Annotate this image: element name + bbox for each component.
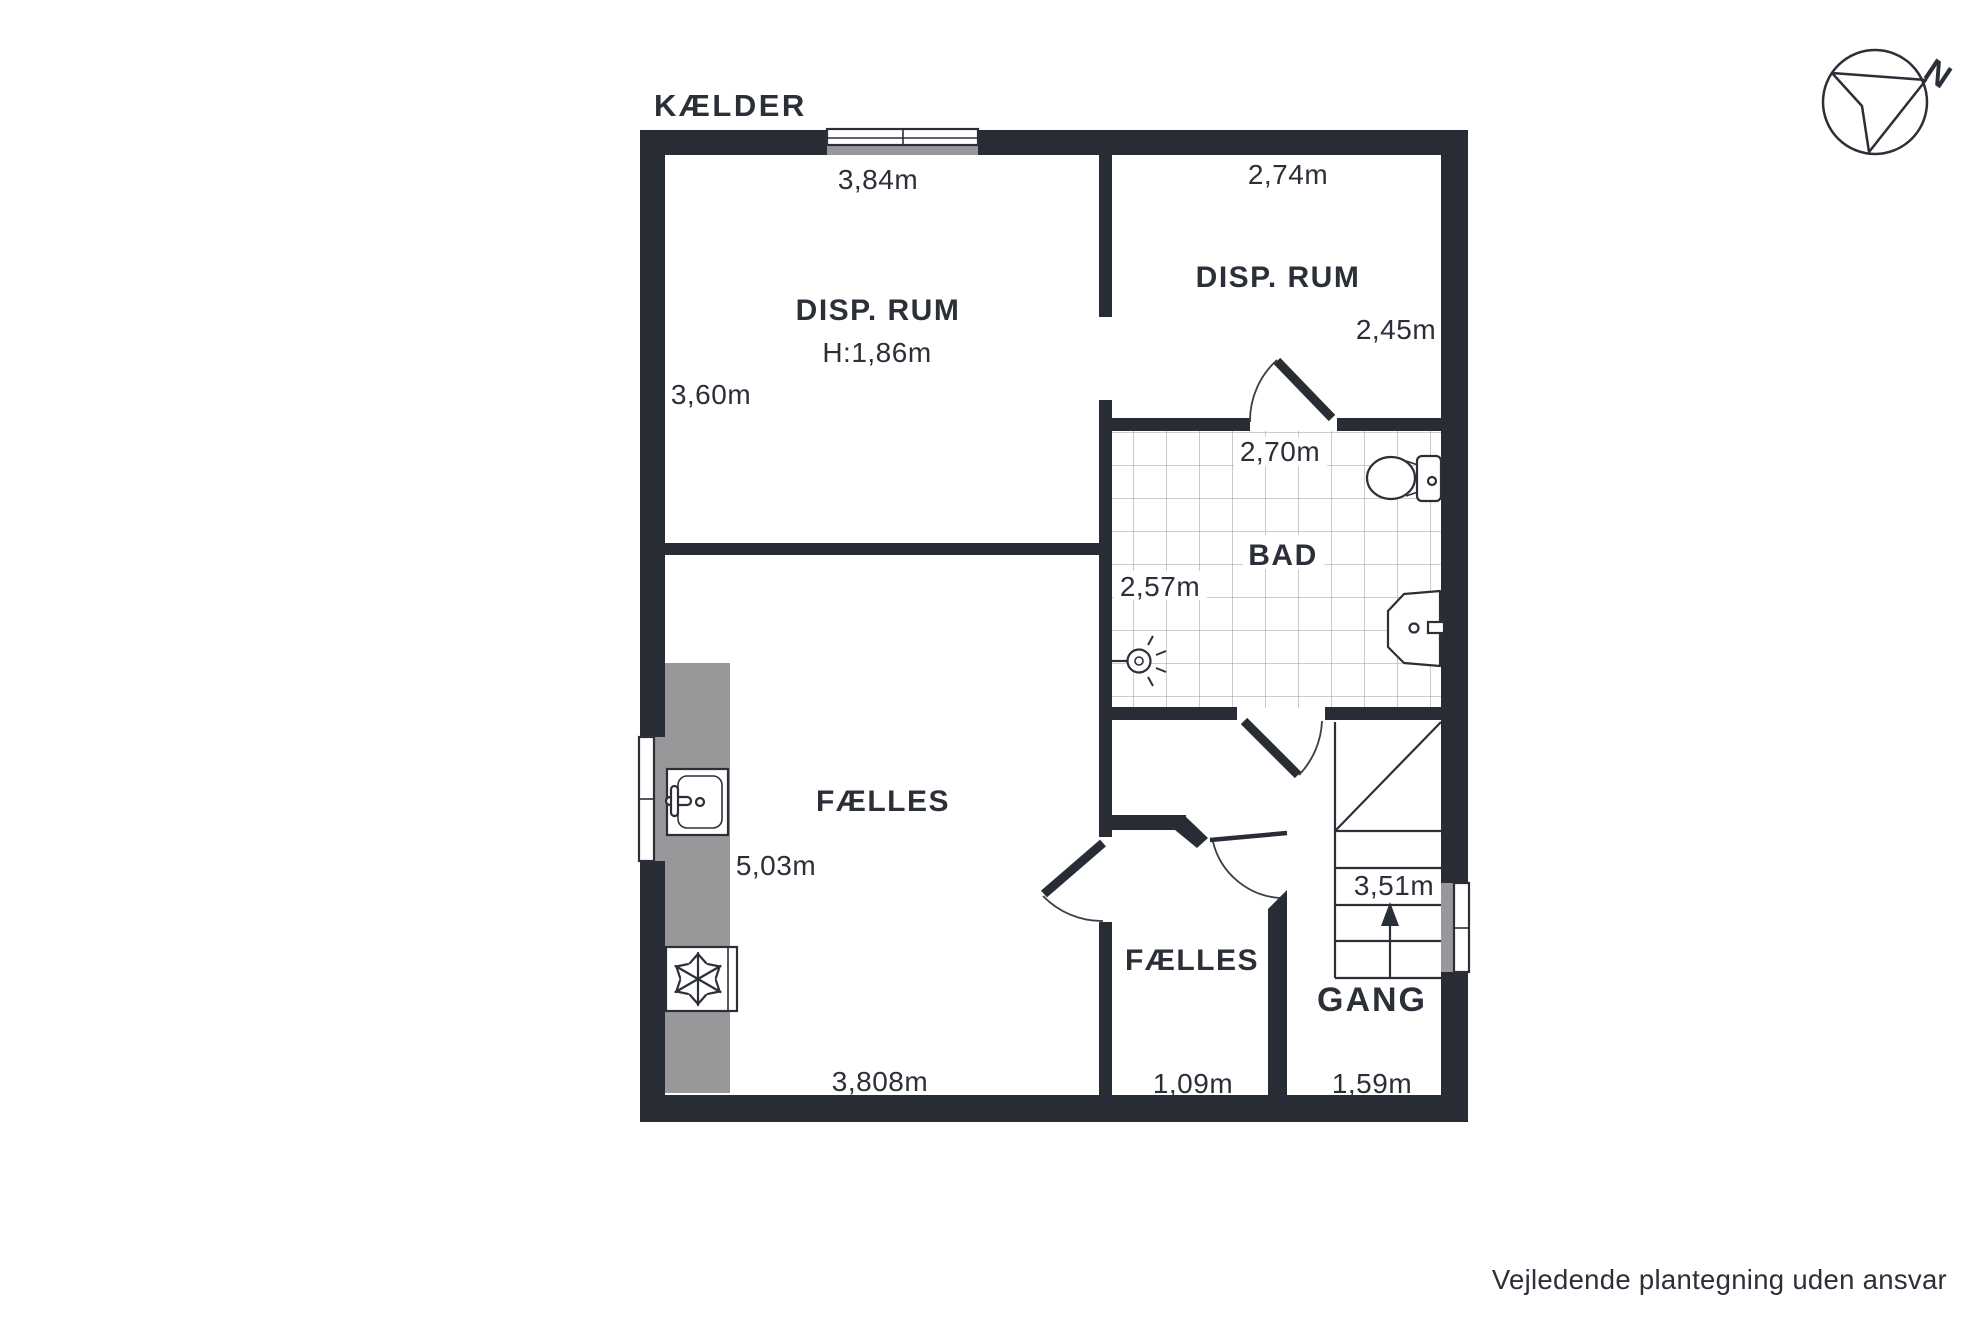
floorplan-canvas: N KÆLDER 3,84m 2,74m DISP. RUM H:1,86m 3…: [0, 0, 1984, 1323]
wall-divider-top: [1099, 155, 1112, 317]
wall-faelles-small-right: [1268, 890, 1287, 1097]
room-label-disp-rum-right: DISP. RUM: [1196, 261, 1361, 294]
kitchen-sink-icon: [666, 769, 728, 835]
disclaimer-text: Vejledende plantegning uden ansvar: [1492, 1264, 1947, 1295]
room-label-bad: BAD: [1248, 539, 1318, 572]
floor-title: KÆLDER: [654, 88, 807, 123]
wall-bad-left: [1099, 431, 1112, 837]
toilet-icon: [1367, 456, 1441, 501]
measurement-bad-depth: 2,57m: [1120, 571, 1200, 602]
washbasin-icon: [1388, 591, 1444, 666]
measurement-disp-right-depth: 2,45m: [1356, 314, 1436, 345]
measurement-faelles-depth: 5,03m: [736, 850, 816, 881]
wall-bad-bottom-right: [1325, 707, 1442, 720]
floorplan-page: N KÆLDER 3,84m 2,74m DISP. RUM H:1,86m 3…: [0, 0, 1984, 1323]
measurement-gang-width: 1,59m: [1332, 1068, 1412, 1099]
measurement-stairs-run: 3,51m: [1354, 870, 1434, 901]
measurement-disp-right-width: 2,74m: [1248, 159, 1328, 190]
compass: N: [1823, 50, 1958, 154]
wall-bottom: [640, 1095, 1468, 1122]
measurement-disp-left-width: 3,84m: [838, 164, 918, 195]
wall-bad-top-left: [1112, 418, 1250, 431]
room-label-faelles-main: FÆLLES: [816, 785, 950, 818]
wall-top: [640, 130, 1468, 155]
window-top: [827, 129, 978, 155]
wall-faelles-small-left: [1099, 922, 1112, 1097]
room-label-faelles-small: FÆLLES: [1125, 944, 1259, 977]
door-faelles-small-gang: [1210, 833, 1287, 898]
room-label-gang: GANG: [1317, 981, 1427, 1019]
measurement-bad-width: 2,70m: [1240, 436, 1320, 467]
window-left: [639, 737, 665, 861]
door-bad-corridor: [1244, 721, 1322, 775]
room-label-disp-rum-left: DISP. RUM: [796, 294, 961, 327]
stairs-winder-diagonal: [1335, 722, 1441, 831]
door-faelles-main: [1043, 843, 1103, 921]
measurement-disp-left-depth: 3,60m: [671, 379, 751, 410]
measurement-faelles-small-width: 1,09m: [1153, 1068, 1233, 1099]
wall-bad-top-right: [1337, 418, 1442, 431]
freezer-icon: [666, 947, 737, 1011]
wall-left: [640, 130, 665, 1122]
measurement-faelles-width: 3,808m: [832, 1066, 928, 1097]
wall-divider-stub: [1099, 400, 1112, 432]
wall-bad-bottom-left: [1112, 707, 1237, 720]
ceiling-height-note: H:1,86m: [822, 337, 931, 368]
window-right: [1441, 883, 1469, 972]
kitchen-counter: [665, 663, 730, 1093]
door-dispright-bad: [1250, 360, 1332, 422]
wall-faelles-small-top: [1112, 815, 1186, 830]
stairs: [1335, 722, 1441, 978]
wall-disp-faelles-divider: [665, 543, 1112, 555]
